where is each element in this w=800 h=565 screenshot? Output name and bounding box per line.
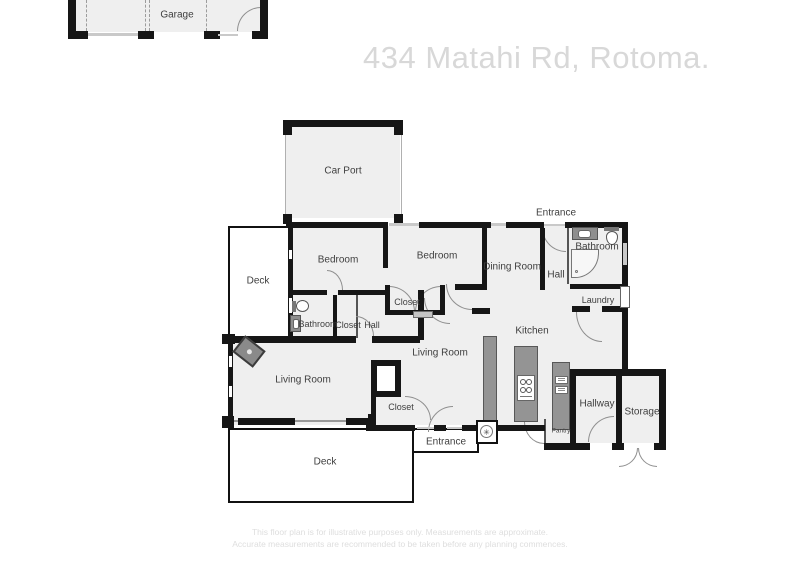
wall (440, 285, 445, 313)
stove-icon (517, 375, 535, 401)
wall (228, 342, 233, 420)
room-label-bedroom-left: Bedroom (318, 255, 359, 266)
kitchen-counter-left (483, 336, 497, 430)
laundry-nook (620, 286, 630, 308)
disclaimer-line-2: Accurate measurements are recommended to… (0, 539, 800, 551)
room-label-deck-top: Deck (247, 276, 270, 287)
garage-bay-divider (149, 0, 150, 31)
wall (419, 222, 491, 228)
room-label-car-port: Car Port (324, 166, 361, 177)
wall (602, 306, 622, 312)
wall (222, 334, 235, 344)
room-label-living-room-left: Living Room (275, 375, 331, 386)
sink-icon (578, 230, 591, 238)
room-label-dining-room: Dining Room (483, 262, 541, 273)
wall (333, 295, 337, 338)
room-label-laundry: Laundry (582, 295, 615, 305)
window (229, 386, 232, 397)
room-label-hallway: Hallway (579, 399, 614, 410)
floor-plan-page: 434 Matahi Rd, Rotoma. ✳ (0, 0, 800, 565)
wall (372, 336, 420, 343)
wall (283, 120, 403, 127)
wall (616, 375, 622, 443)
wall (654, 443, 666, 450)
window (377, 366, 395, 391)
garage-bay-divider (145, 0, 146, 31)
hot-water-cylinder-icon: ✳ (476, 420, 498, 444)
bathroom-vanity-icon (572, 227, 598, 240)
window (623, 243, 627, 265)
room-label-bathroom-top: Bathroom (575, 242, 618, 253)
room-label-hall-left: Hall (364, 320, 380, 330)
door-arc (619, 448, 638, 467)
wall (68, 31, 88, 39)
room-label-closet-mid: Closet (394, 297, 420, 307)
thin-wall (567, 228, 569, 284)
wall (544, 443, 574, 450)
heater-icon (413, 311, 433, 318)
wall (659, 369, 666, 450)
wall (612, 443, 618, 450)
wall (338, 290, 385, 295)
room-label-deck-bottom: Deck (314, 457, 337, 468)
wall (368, 414, 374, 431)
room-label-living-room-center: Living Room (412, 348, 468, 359)
window (447, 427, 462, 429)
door-arc (638, 448, 657, 467)
thin-wall (285, 127, 286, 217)
fan-icon: ✳ (480, 425, 493, 438)
room-label-bedroom-mid: Bedroom (417, 251, 458, 262)
wall (570, 375, 576, 445)
wall (570, 284, 624, 289)
wall (291, 290, 327, 295)
wall (286, 222, 388, 228)
room-label-garage: Garage (160, 10, 193, 21)
wall (540, 228, 545, 290)
disclaimer: This floor plan is for illustrative purp… (0, 527, 800, 550)
wall (238, 418, 295, 425)
room-label-entrance-top: Entrance (536, 208, 576, 219)
wall (283, 120, 292, 135)
wall (572, 306, 590, 312)
room-label-bathroom-left: Bathroom (298, 319, 337, 329)
wall (385, 285, 390, 313)
window (218, 34, 238, 36)
wall (138, 31, 154, 39)
wall (222, 416, 234, 428)
room-label-entrance-bottom: Entrance (426, 437, 466, 448)
room-label-closet-bottom: Closet (388, 402, 414, 412)
room-label-hall-top: Hall (547, 270, 564, 281)
toilet-icon (296, 300, 309, 312)
wall (252, 31, 268, 39)
wall (506, 222, 544, 228)
wall-oven-icon (553, 376, 570, 396)
window (88, 33, 138, 36)
thin-wall (401, 127, 402, 217)
window (417, 427, 434, 429)
disclaimer-line-1: This floor plan is for illustrative purp… (0, 527, 800, 539)
window (289, 250, 292, 259)
window (491, 223, 506, 226)
wall (472, 308, 490, 314)
room-label-kitchen: Kitchen (515, 326, 548, 337)
wall (434, 425, 446, 431)
thin-wall (544, 419, 546, 445)
window (389, 223, 419, 226)
wall (622, 308, 628, 370)
garage-bay-divider (86, 0, 87, 31)
wall (462, 425, 477, 431)
page-title: 434 Matahi Rd, Rotoma. (363, 40, 710, 76)
room-label-storage: Storage (624, 407, 659, 418)
wall (482, 222, 487, 288)
garage-bay-divider (206, 0, 207, 31)
wall (383, 222, 388, 268)
wall (394, 120, 403, 135)
kitchen-counter-right (552, 362, 570, 430)
wall (498, 425, 545, 431)
window (229, 356, 232, 367)
room-label-pantry: Pantry (552, 428, 571, 435)
room-label-closet-left: Closet (335, 320, 361, 330)
wall (455, 284, 487, 290)
window (544, 224, 565, 226)
